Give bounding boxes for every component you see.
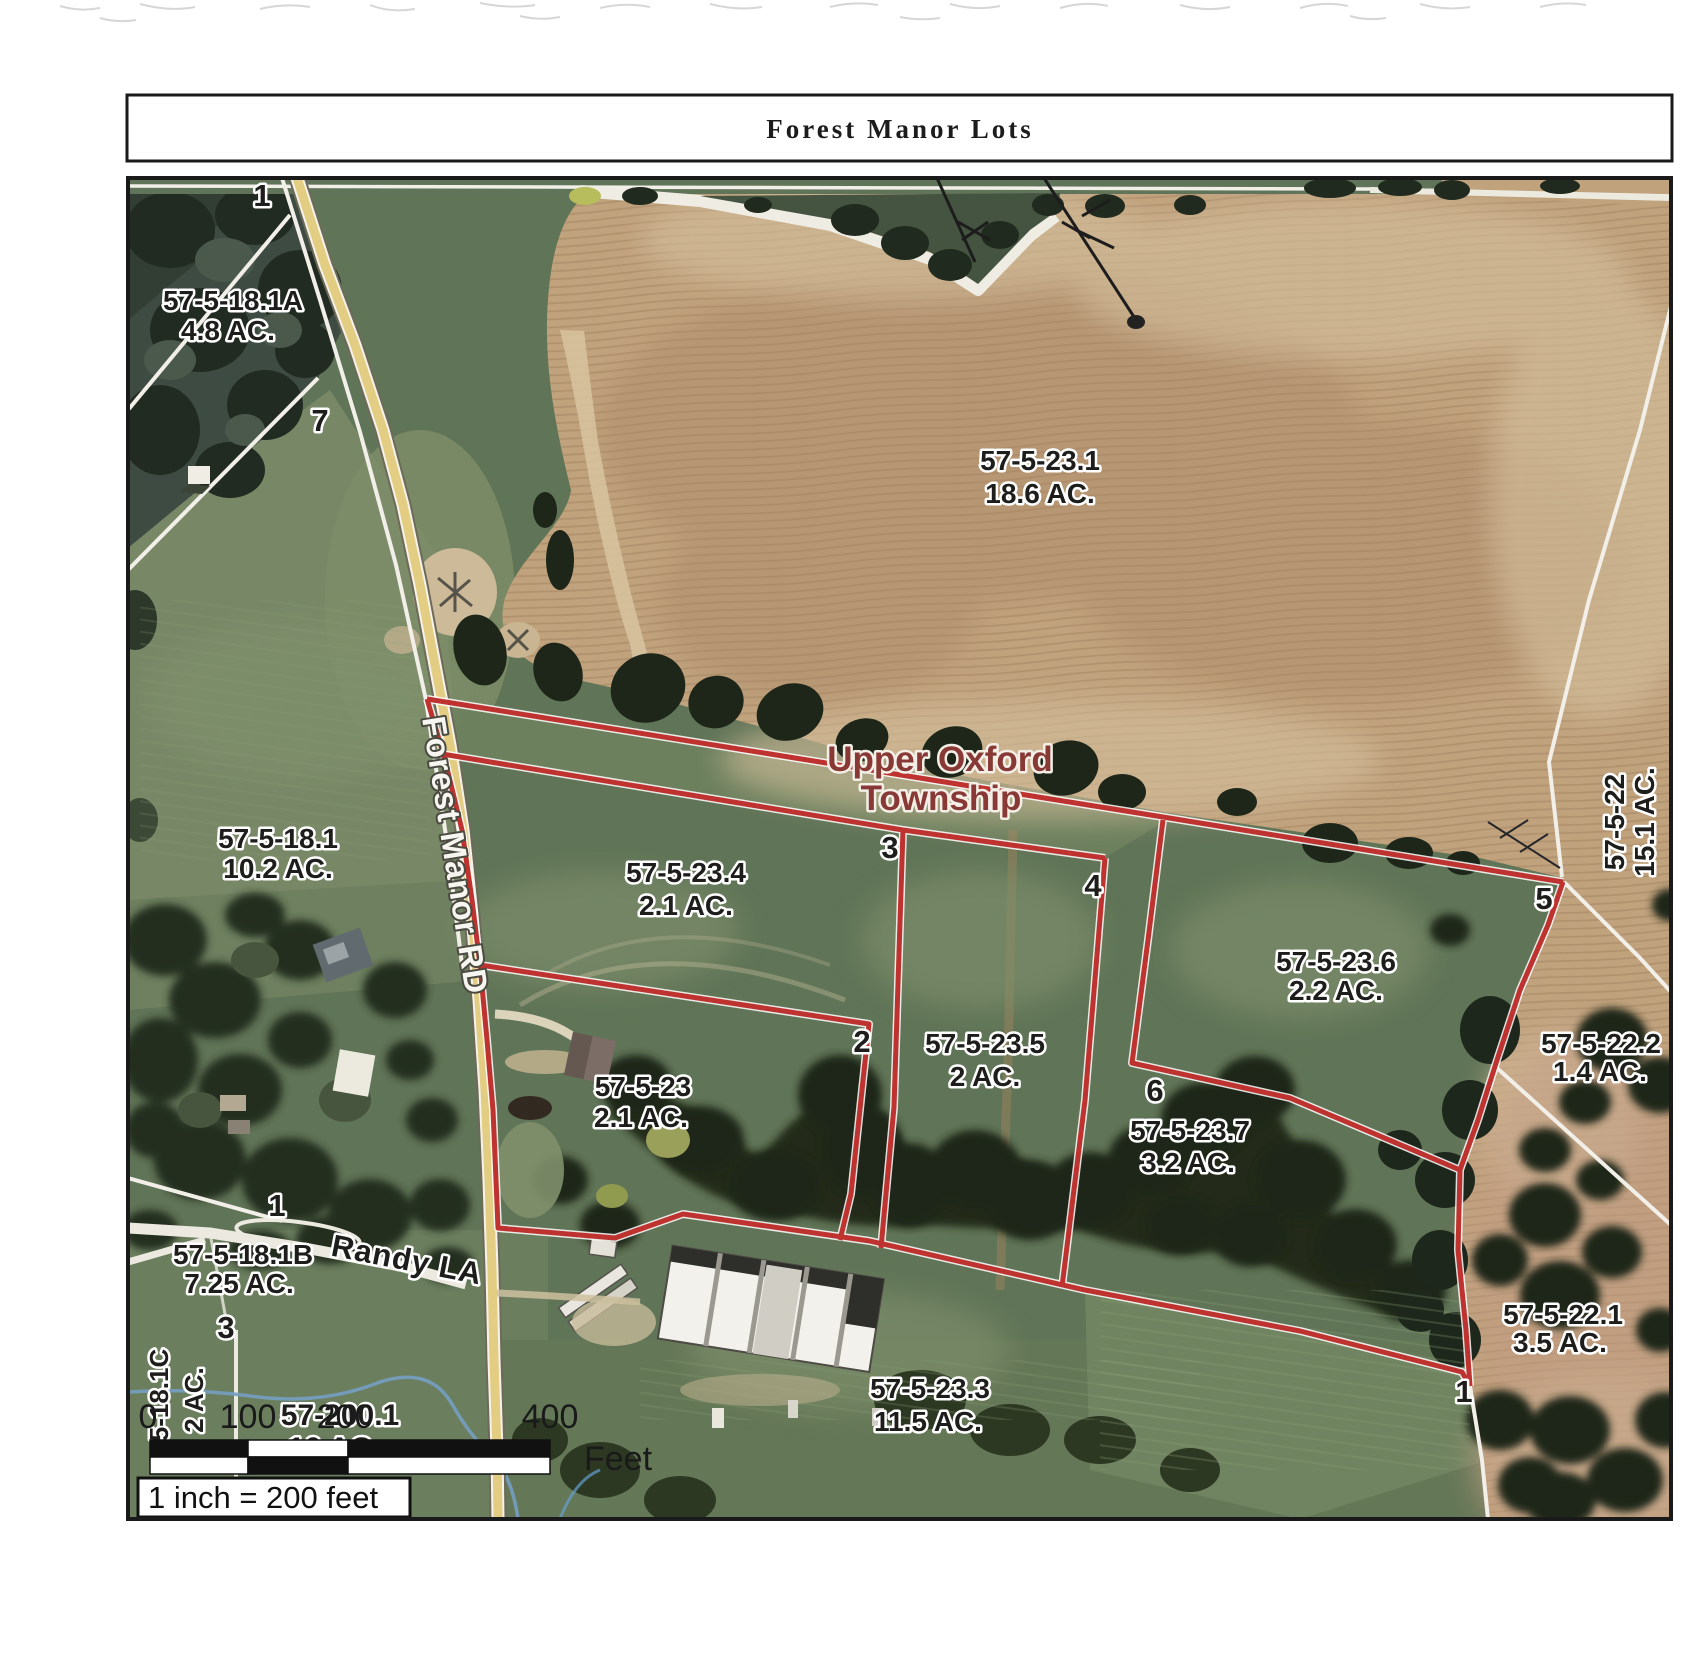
svg-text:57-5-23.7: 57-5-23.7 [1130, 1115, 1250, 1146]
svg-text:3: 3 [881, 830, 898, 865]
svg-text:3.2 AC.: 3.2 AC. [1141, 1147, 1235, 1178]
svg-text:57-5-23.6: 57-5-23.6 [1276, 946, 1396, 977]
svg-text:2.1 AC.: 2.1 AC. [594, 1102, 688, 1133]
svg-text:400: 400 [522, 1398, 579, 1436]
svg-text:Forest Manor Lots: Forest Manor Lots [766, 114, 1033, 144]
svg-text:2.2 AC.: 2.2 AC. [1289, 975, 1383, 1006]
svg-text:0: 0 [139, 1398, 158, 1436]
svg-text:57-5-18.1: 57-5-18.1 [218, 823, 338, 854]
svg-text:2.1 AC.: 2.1 AC. [639, 890, 733, 921]
svg-text:2 AC.: 2 AC. [179, 1367, 209, 1433]
svg-text:57-5-18.1A: 57-5-18.1A [163, 285, 303, 316]
svg-text:6: 6 [1146, 1073, 1163, 1108]
svg-text:18.6 AC.: 18.6 AC. [985, 478, 1094, 509]
svg-text:57-5-22: 57-5-22 [1599, 774, 1630, 871]
svg-text:4: 4 [1084, 868, 1102, 903]
svg-text:Township: Township [861, 779, 1022, 818]
svg-text:57-5-23.4: 57-5-23.4 [626, 857, 746, 888]
svg-text:1: 1 [1455, 1374, 1472, 1409]
svg-text:Feet: Feet [584, 1440, 653, 1478]
svg-text:1: 1 [253, 178, 270, 213]
svg-text:1.4 AC.: 1.4 AC. [1553, 1056, 1647, 1087]
svg-text:57-5-22.1: 57-5-22.1 [1503, 1299, 1623, 1330]
svg-text:57-5-23.5: 57-5-23.5 [925, 1028, 1045, 1059]
svg-text:10.2 AC.: 10.2 AC. [223, 853, 332, 884]
svg-text:57-5-23: 57-5-23 [595, 1071, 692, 1102]
svg-text:11.5 AC.: 11.5 AC. [874, 1406, 982, 1437]
svg-text:1 inch = 200 feet: 1 inch = 200 feet [148, 1480, 378, 1515]
svg-text:15.1 AC.: 15.1 AC. [1629, 767, 1660, 876]
svg-text:7.25 AC.: 7.25 AC. [184, 1268, 293, 1299]
svg-text:4.8 AC.: 4.8 AC. [181, 315, 275, 346]
svg-text:200: 200 [317, 1398, 374, 1436]
svg-text:2: 2 [853, 1024, 870, 1059]
svg-text:57-5-18.1B: 57-5-18.1B [173, 1239, 313, 1270]
svg-text:5: 5 [1535, 881, 1552, 916]
svg-text:1: 1 [268, 1188, 285, 1223]
svg-text:57-5-23.3: 57-5-23.3 [870, 1373, 990, 1404]
svg-text:57-5-23.1: 57-5-23.1 [980, 445, 1100, 476]
svg-text:57-5-22.2: 57-5-22.2 [1541, 1028, 1661, 1059]
svg-text:7: 7 [311, 403, 328, 438]
svg-text:Upper Oxford: Upper Oxford [827, 740, 1053, 779]
svg-text:3.5 AC.: 3.5 AC. [1513, 1327, 1607, 1358]
svg-text:3: 3 [217, 1310, 234, 1345]
svg-text:2 AC.: 2 AC. [950, 1061, 1021, 1092]
svg-text:100: 100 [220, 1398, 277, 1436]
